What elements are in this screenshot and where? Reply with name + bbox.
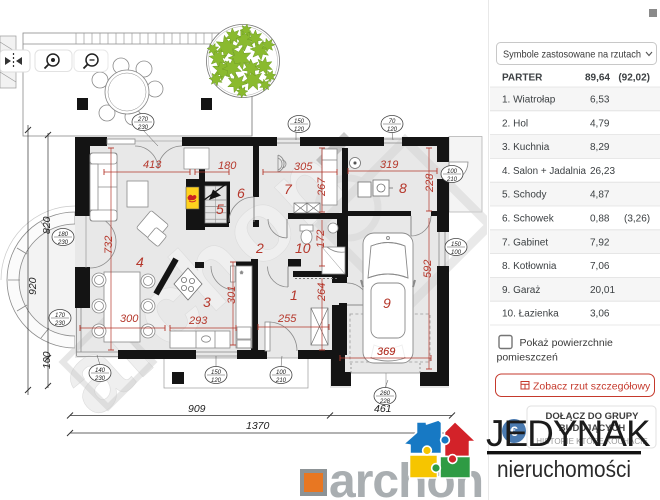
svg-text:JEDYNAK: JEDYNAK bbox=[486, 413, 651, 454]
svg-text:9. Garaż: 9. Garaż bbox=[502, 285, 540, 296]
svg-text:210: 210 bbox=[275, 378, 287, 384]
svg-text:592: 592 bbox=[422, 260, 434, 278]
svg-text:4,87: 4,87 bbox=[590, 190, 610, 201]
svg-text:Zobacz rzut szczegółowy: Zobacz rzut szczegółowy bbox=[533, 381, 651, 393]
svg-text:150: 150 bbox=[451, 242, 462, 248]
svg-text:461: 461 bbox=[374, 403, 392, 415]
svg-text:7. Gabinet: 7. Gabinet bbox=[502, 237, 548, 248]
svg-text:4: 4 bbox=[136, 254, 144, 270]
svg-text:10. Łazienka: 10. Łazienka bbox=[502, 309, 559, 320]
svg-text:(3,26): (3,26) bbox=[624, 214, 650, 225]
svg-text:100: 100 bbox=[447, 169, 458, 175]
svg-text:20,01: 20,01 bbox=[590, 285, 615, 296]
svg-text:172: 172 bbox=[315, 230, 327, 248]
svg-text:0,88: 0,88 bbox=[590, 214, 610, 225]
svg-text:920: 920 bbox=[27, 277, 39, 295]
svg-text:Pokaż powierzchnie: Pokaż powierzchnie bbox=[520, 337, 614, 349]
svg-text:nieruchomości: nieruchomości bbox=[497, 456, 631, 482]
svg-text:230: 230 bbox=[57, 240, 69, 246]
svg-text:150: 150 bbox=[294, 119, 305, 125]
svg-text:230: 230 bbox=[94, 376, 106, 382]
svg-text:319: 319 bbox=[380, 159, 398, 171]
svg-text:5. Schody: 5. Schody bbox=[502, 190, 546, 201]
svg-text:(92,02): (92,02) bbox=[618, 73, 650, 84]
svg-text:180: 180 bbox=[58, 232, 69, 238]
svg-text:70: 70 bbox=[389, 119, 396, 125]
svg-text:170: 170 bbox=[55, 313, 66, 319]
svg-text:293: 293 bbox=[188, 315, 208, 327]
svg-text:732: 732 bbox=[103, 236, 115, 254]
svg-text:300: 300 bbox=[120, 313, 139, 325]
svg-text:8. Kotłownia: 8. Kotłownia bbox=[502, 261, 557, 272]
svg-text:5: 5 bbox=[216, 201, 224, 217]
svg-text:255: 255 bbox=[277, 313, 297, 325]
svg-text:305: 305 bbox=[294, 161, 313, 173]
svg-text:3. Kuchnia: 3. Kuchnia bbox=[502, 142, 550, 153]
svg-text:6. Schowek: 6. Schowek bbox=[502, 214, 555, 225]
svg-text:2. Hol: 2. Hol bbox=[502, 118, 528, 129]
svg-text:120: 120 bbox=[211, 378, 222, 384]
svg-text:26,23: 26,23 bbox=[590, 166, 615, 177]
svg-text:100: 100 bbox=[276, 370, 287, 376]
svg-text:3,06: 3,06 bbox=[590, 309, 610, 320]
svg-text:1. Wiatrołap: 1. Wiatrołap bbox=[502, 95, 556, 106]
svg-text:89,64: 89,64 bbox=[585, 73, 610, 84]
svg-text:909: 909 bbox=[188, 403, 206, 415]
svg-text:230: 230 bbox=[54, 321, 66, 327]
svg-text:7,92: 7,92 bbox=[590, 237, 610, 248]
svg-text:230: 230 bbox=[137, 125, 149, 131]
svg-text:100: 100 bbox=[41, 351, 53, 369]
svg-text:10: 10 bbox=[295, 240, 311, 256]
svg-text:120: 120 bbox=[294, 127, 305, 133]
svg-text:180: 180 bbox=[218, 160, 237, 172]
svg-text:9: 9 bbox=[383, 295, 391, 311]
svg-text:pomieszczeń: pomieszczeń bbox=[497, 352, 558, 364]
svg-text:7,06: 7,06 bbox=[590, 261, 610, 272]
svg-text:301: 301 bbox=[226, 286, 238, 304]
svg-text:6: 6 bbox=[237, 185, 245, 201]
svg-text:PARTER: PARTER bbox=[502, 73, 543, 84]
svg-text:369: 369 bbox=[377, 346, 395, 358]
svg-text:100: 100 bbox=[451, 250, 462, 256]
svg-text:2: 2 bbox=[255, 240, 264, 256]
svg-text:1370: 1370 bbox=[246, 420, 270, 432]
svg-text:210: 210 bbox=[446, 177, 458, 183]
svg-text:267: 267 bbox=[316, 177, 328, 197]
svg-text:260: 260 bbox=[379, 391, 391, 397]
svg-text:1: 1 bbox=[290, 287, 298, 303]
svg-text:4,79: 4,79 bbox=[590, 118, 610, 129]
svg-text:3: 3 bbox=[203, 294, 211, 310]
svg-text:413: 413 bbox=[143, 159, 162, 171]
svg-text:4. Salon + Jadalnia: 4. Salon + Jadalnia bbox=[502, 166, 586, 177]
svg-text:*: * bbox=[240, 270, 243, 279]
svg-text:Symbole zastosowane na rzutach: Symbole zastosowane na rzutach bbox=[503, 49, 641, 61]
svg-text:8: 8 bbox=[399, 180, 407, 196]
svg-text:7: 7 bbox=[284, 181, 293, 197]
svg-text:228: 228 bbox=[424, 173, 436, 193]
svg-text:270: 270 bbox=[137, 117, 149, 123]
svg-text:150: 150 bbox=[211, 370, 222, 376]
svg-text:120: 120 bbox=[387, 127, 398, 133]
svg-text:8,29: 8,29 bbox=[590, 142, 610, 153]
svg-text:820: 820 bbox=[41, 216, 53, 234]
svg-text:6,53: 6,53 bbox=[590, 95, 610, 106]
svg-text:140: 140 bbox=[95, 368, 106, 374]
svg-text:264: 264 bbox=[316, 283, 328, 302]
